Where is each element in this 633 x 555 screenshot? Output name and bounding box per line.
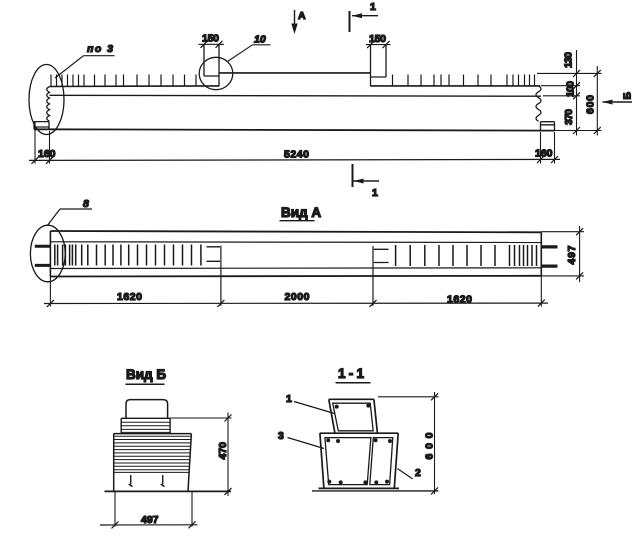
svg-text:160: 160 [535, 148, 553, 160]
svg-text:A: A [298, 10, 306, 22]
svg-text:Б: Б [622, 92, 633, 100]
svg-text:1: 1 [372, 187, 378, 199]
svg-text:100: 100 [565, 81, 577, 97]
svg-text:600: 600 [424, 432, 436, 459]
svg-text:470: 470 [217, 442, 229, 460]
svg-text:497: 497 [566, 245, 578, 264]
svg-text:150: 150 [202, 33, 219, 45]
svg-text:150: 150 [369, 33, 386, 45]
svg-text:1620: 1620 [117, 291, 142, 303]
svg-text:3: 3 [278, 430, 284, 442]
svg-text:2000: 2000 [285, 291, 310, 303]
svg-text:370: 370 [563, 109, 575, 125]
svg-text:5240: 5240 [284, 149, 309, 161]
svg-text:1: 1 [286, 393, 292, 405]
svg-text:1620: 1620 [447, 294, 472, 306]
svg-text:Вид А: Вид А [281, 205, 321, 220]
svg-text:1-1: 1-1 [338, 366, 364, 381]
svg-text:497: 497 [141, 514, 159, 526]
svg-text:8: 8 [83, 198, 89, 210]
svg-text:600: 600 [585, 95, 597, 114]
svg-text:2: 2 [415, 467, 421, 479]
svg-text:по 3: по 3 [87, 43, 113, 55]
svg-text:1: 1 [370, 1, 376, 13]
svg-text:Вид Б: Вид Б [126, 367, 166, 382]
svg-text:160: 160 [38, 148, 56, 160]
svg-text:130: 130 [563, 52, 575, 68]
svg-text:10: 10 [254, 34, 266, 46]
